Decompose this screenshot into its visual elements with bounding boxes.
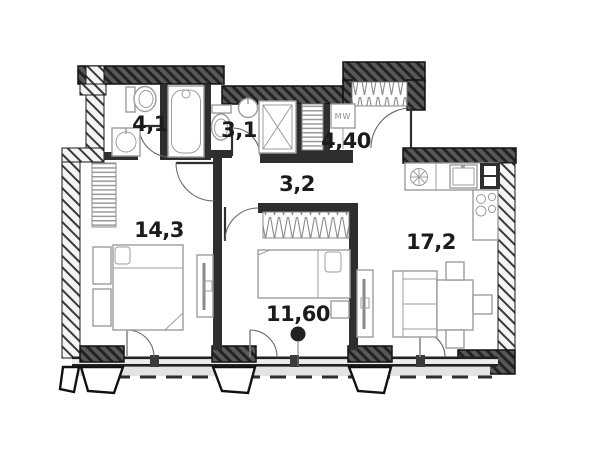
duct-pane (484, 166, 496, 175)
fan-spokes (411, 169, 428, 186)
chair (446, 330, 464, 348)
nightstand (331, 301, 349, 318)
room-label-bathroom: 3,1 (221, 118, 257, 142)
bedroom-left-door-arc (176, 163, 214, 201)
living-furniture (357, 262, 492, 348)
window-pier (80, 346, 124, 362)
wall-kitchen-top (403, 148, 516, 163)
nightstand (93, 247, 111, 284)
bedroom-middle-door-arc (225, 208, 258, 241)
balcony-glazing (60, 346, 498, 393)
room-label-wc: 4,1 (132, 112, 168, 136)
entry-wardrobe (352, 82, 407, 106)
window-flap (81, 367, 123, 393)
bedroom-left-furniture (93, 245, 213, 330)
toilet-tank (212, 105, 231, 113)
window-flap (213, 367, 255, 393)
room-label-living-kitchen: 17,2 (406, 230, 456, 254)
wall-niche-top (343, 62, 425, 82)
window-flap (60, 367, 79, 392)
floor-plan-drawing: MW (0, 0, 608, 457)
closet-shelves (302, 104, 323, 150)
wall-left-lower (62, 162, 80, 358)
window-line-inner (72, 364, 498, 367)
vent-shaft (80, 84, 106, 95)
floor-plan-canvas: MW (0, 0, 608, 457)
room-label-entry-hall: 4,40 (321, 129, 371, 153)
bathtub (168, 86, 204, 157)
nightstand (93, 289, 111, 326)
wall-niche-right (407, 80, 425, 110)
dining-table (437, 280, 473, 330)
kitchen-tap (461, 165, 465, 169)
wall-bedrooms-divider (213, 152, 222, 350)
chair (473, 295, 492, 314)
wall-left-upper (86, 66, 104, 152)
double-bed (113, 245, 183, 330)
kitchen (405, 163, 500, 240)
entry-door-arc (371, 108, 411, 148)
bedroom-left-wardrobe (92, 163, 116, 227)
bathtub-group (168, 86, 204, 157)
balcony-door-arc (127, 330, 154, 357)
washing-machine-label: MW (335, 112, 352, 121)
window-flap (349, 367, 391, 393)
duct-pane (484, 177, 496, 186)
room-label-bedroom-middle: 11,60 (266, 302, 330, 326)
room-label-hallway: 3,2 (279, 172, 315, 196)
wall-left-step (62, 148, 104, 162)
bedroom-middle-wardrobe (263, 212, 349, 238)
bed (258, 250, 350, 298)
column-dot (291, 327, 306, 342)
balcony-strip (62, 366, 490, 376)
wall-right (498, 163, 515, 374)
room-label-bedroom-left: 14,3 (134, 218, 184, 242)
chair (446, 262, 464, 280)
window-line-outer (72, 357, 498, 360)
